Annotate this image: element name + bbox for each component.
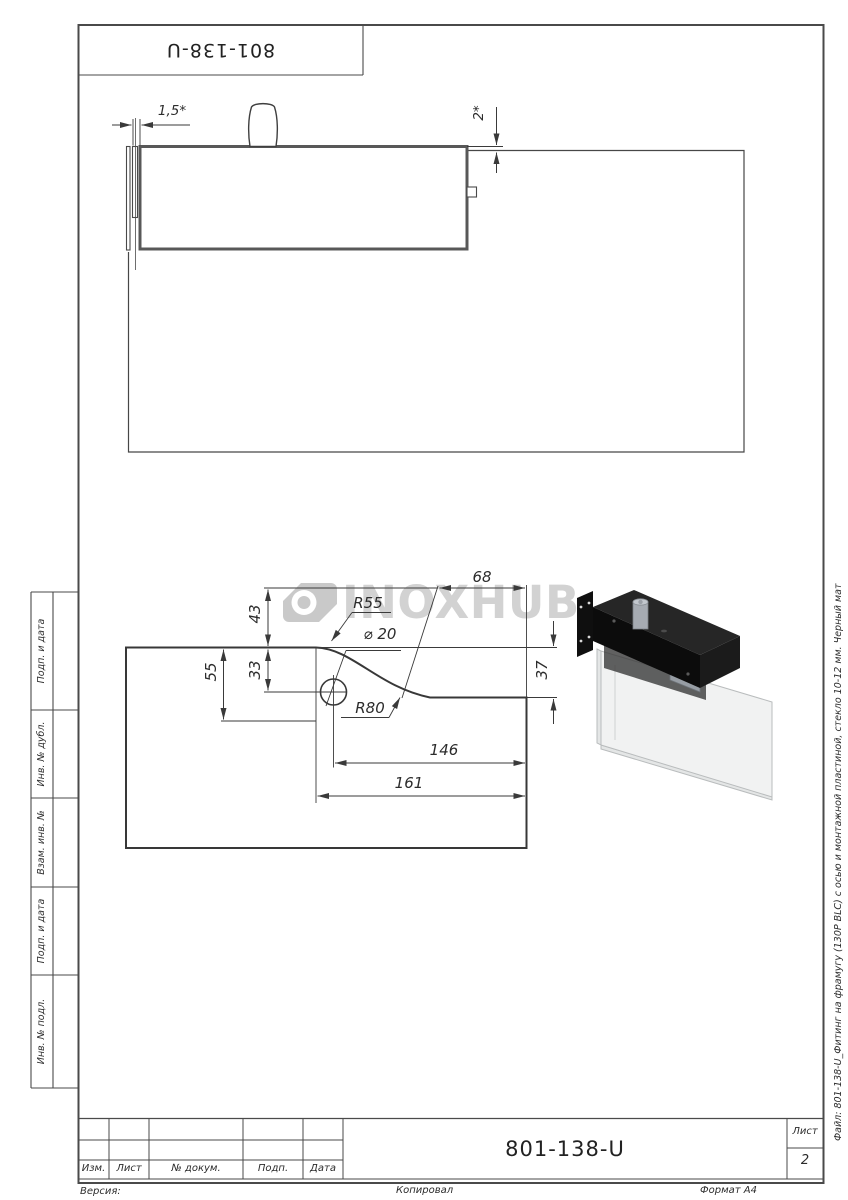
watermark-logo-icon xyxy=(283,583,337,622)
strip-label-inv-dubl: Инв. № дубл. xyxy=(31,710,53,798)
sheet-number: 2 xyxy=(787,1153,823,1168)
dim-43: 43 xyxy=(243,600,267,628)
dim-37: 37 xyxy=(530,656,554,684)
dim-33: 33 xyxy=(243,656,267,684)
strip-label-inv-podl: Инв. № подл. xyxy=(31,975,53,1088)
strip-label-vzam-inv: Взам. инв. № xyxy=(31,798,53,887)
top-designation-box: 801-138-U xyxy=(79,25,363,75)
file-note-vertical: Файл: 801-138-U_Фитинг на фрамугу (130P … xyxy=(833,579,844,1141)
col-podp: Подп. xyxy=(243,1163,303,1174)
drawing-sheet: INOXHUB xyxy=(0,0,848,1200)
strip-label-podp-data-2: Подп. и дата xyxy=(31,887,53,975)
fitting-3d-render xyxy=(577,590,772,800)
dim-146: 146 xyxy=(419,741,469,759)
col-list: Лист xyxy=(109,1163,149,1174)
dim-r80: R80 xyxy=(347,699,393,717)
dim-hole-diameter: ⌀ 20 xyxy=(354,625,406,643)
dim-gap-1-5: 1,5* xyxy=(150,103,194,119)
profile-drawing xyxy=(126,585,557,848)
dim-offset-2: 2* xyxy=(467,99,491,127)
version-label: Версия: xyxy=(80,1186,121,1197)
dim-161: 161 xyxy=(384,774,434,792)
dim-68: 68 xyxy=(460,568,504,586)
col-izm: Изм. xyxy=(78,1163,109,1174)
col-dokum: № докум. xyxy=(149,1163,243,1174)
strip-label-podp-data-1: Подп. и дата xyxy=(31,592,53,710)
drawing-canvas xyxy=(0,0,848,1200)
top-view-drawing xyxy=(112,104,744,452)
designation-main: 801-138-U xyxy=(343,1119,787,1179)
dim-55: 55 xyxy=(199,658,223,686)
sheet-word-label: Лист xyxy=(787,1126,823,1137)
dim-r55: R55 xyxy=(345,594,391,612)
copied-label: Копировал xyxy=(396,1185,453,1196)
format-label: Формат A4 xyxy=(700,1185,757,1196)
top-designation-text: 801-138-U xyxy=(166,39,275,61)
col-data: Дата xyxy=(303,1163,343,1174)
